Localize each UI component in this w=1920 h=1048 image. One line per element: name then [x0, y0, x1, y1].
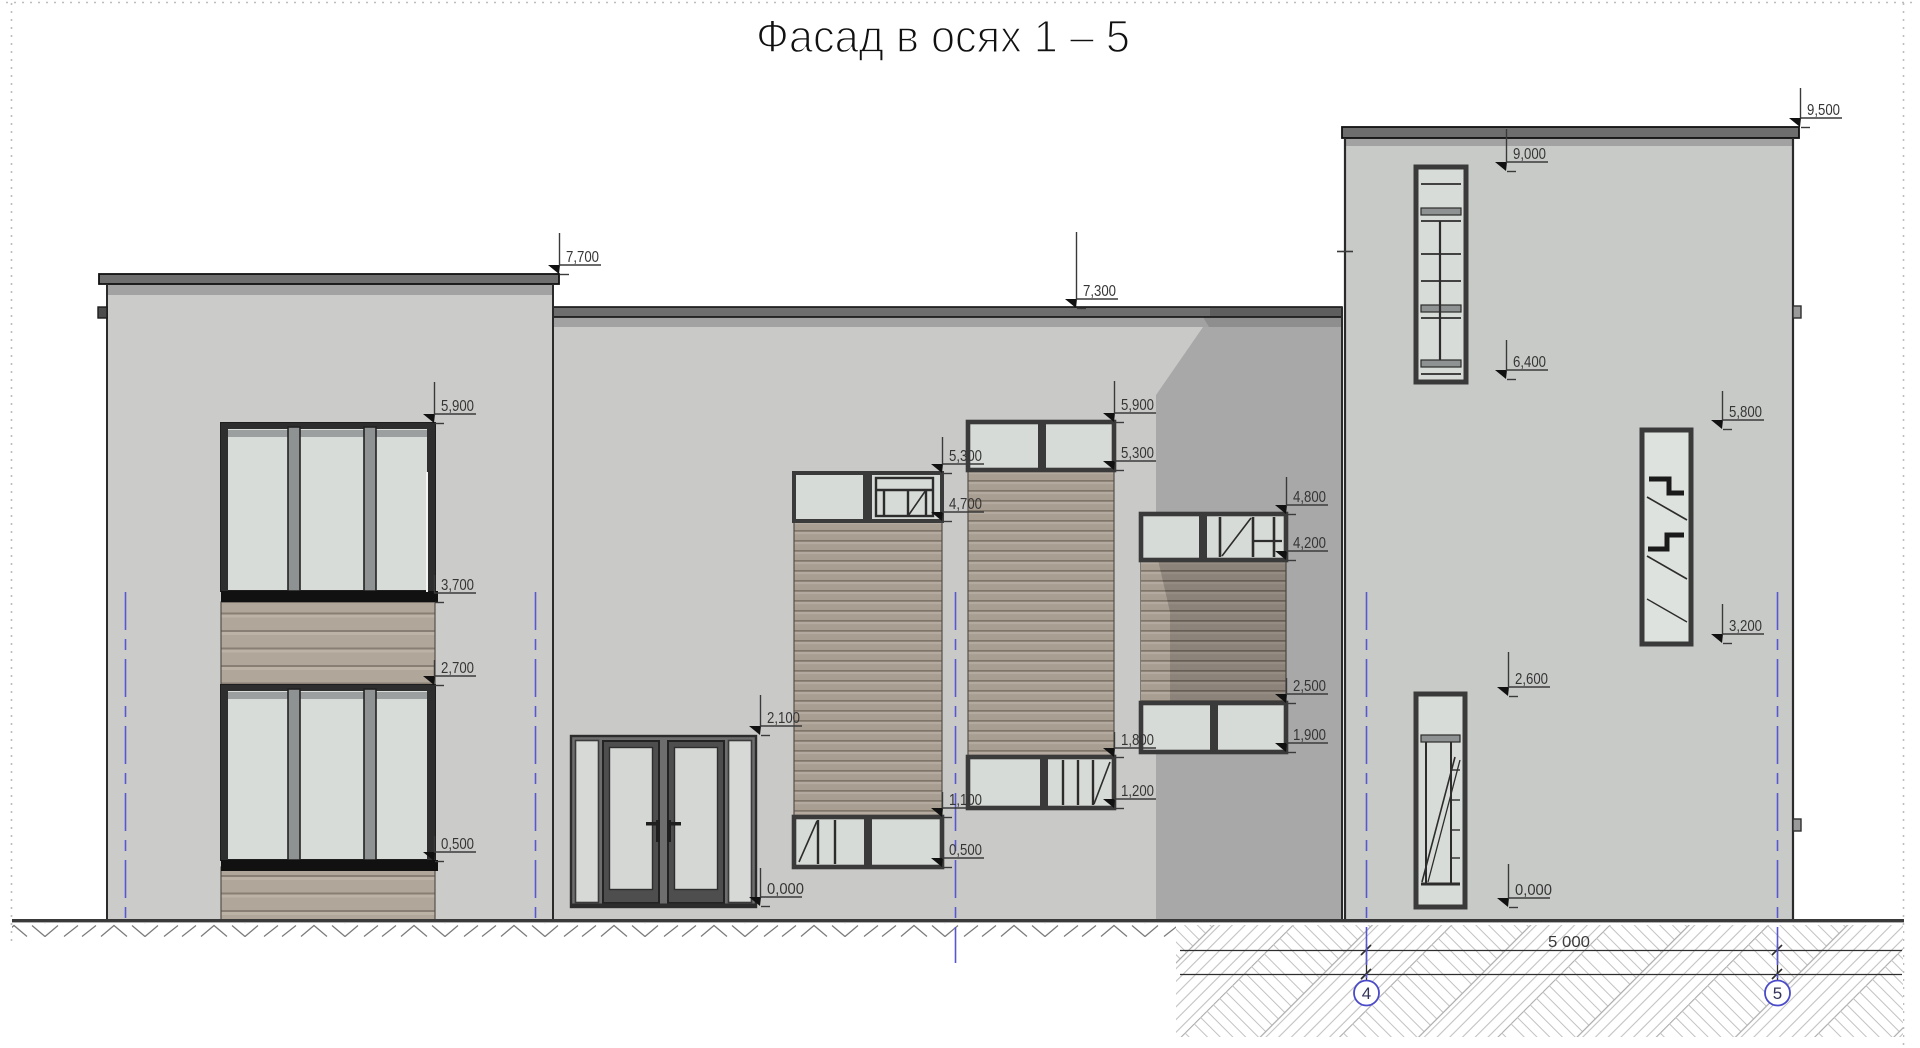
- svg-text:2,600: 2,600: [1515, 671, 1548, 688]
- svg-text:0,000: 0,000: [1515, 882, 1552, 899]
- svg-text:6,400: 6,400: [1513, 354, 1546, 371]
- svg-text:0,000: 0,000: [767, 881, 804, 898]
- svg-text:2,500: 2,500: [1293, 678, 1326, 695]
- svg-text:0,500: 0,500: [949, 842, 982, 859]
- svg-text:Фасад в осях 1 – 5: Фасад в осях 1 – 5: [756, 11, 1130, 62]
- svg-text:4,800: 4,800: [1293, 489, 1326, 506]
- svg-text:1,200: 1,200: [1121, 783, 1154, 800]
- svg-text:5 000: 5 000: [1548, 934, 1590, 951]
- svg-text:9,000: 9,000: [1513, 146, 1546, 163]
- svg-text:2,100: 2,100: [767, 710, 800, 727]
- svg-text:2,700: 2,700: [441, 660, 474, 677]
- svg-text:1,900: 1,900: [1293, 727, 1326, 744]
- svg-text:1,100: 1,100: [949, 792, 982, 809]
- svg-text:3,200: 3,200: [1729, 618, 1762, 635]
- svg-text:0,500: 0,500: [441, 836, 474, 853]
- svg-text:4,200: 4,200: [1293, 535, 1326, 552]
- svg-text:7,300: 7,300: [1083, 283, 1116, 300]
- svg-text:4: 4: [1362, 984, 1371, 1003]
- svg-text:4,700: 4,700: [949, 496, 982, 513]
- svg-text:5,900: 5,900: [441, 398, 474, 415]
- svg-text:5,800: 5,800: [1729, 404, 1762, 421]
- svg-text:5: 5: [1773, 984, 1782, 1003]
- svg-text:7,700: 7,700: [566, 249, 599, 266]
- svg-text:5,300: 5,300: [1121, 445, 1154, 462]
- svg-text:9,500: 9,500: [1807, 102, 1840, 119]
- svg-text:3,700: 3,700: [441, 577, 474, 594]
- svg-text:1,800: 1,800: [1121, 732, 1154, 749]
- svg-text:5,900: 5,900: [1121, 397, 1154, 414]
- svg-text:5,300: 5,300: [949, 448, 982, 465]
